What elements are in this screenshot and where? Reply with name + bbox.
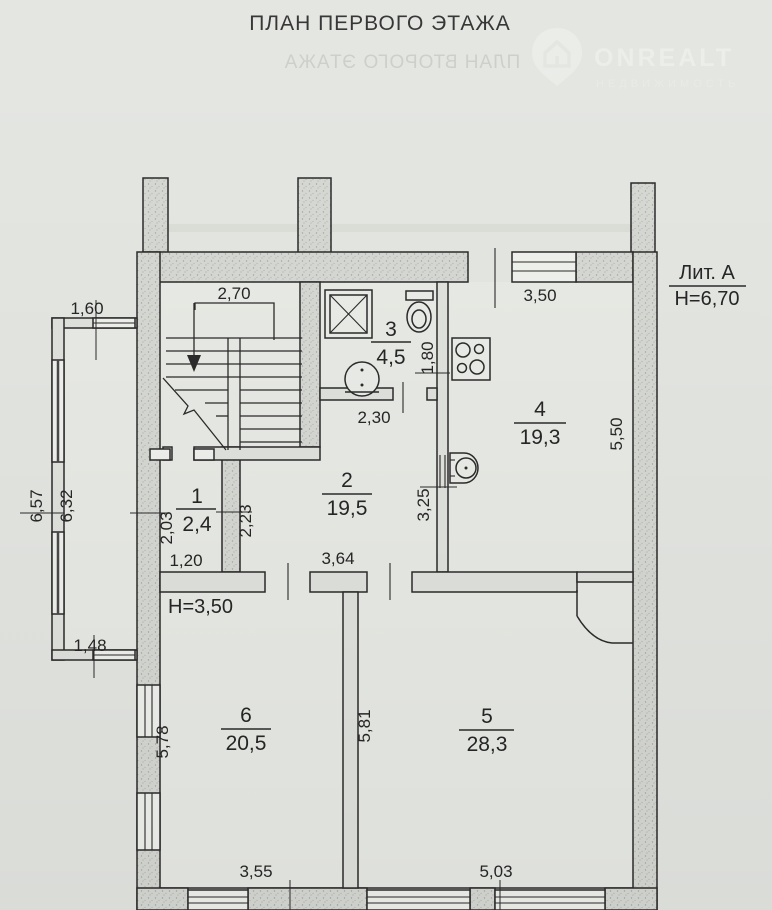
ghost-title: ПЛАН ВТОРОГО ЭТАЖА: [284, 52, 521, 73]
dim-stair-width: 2,70: [217, 284, 250, 303]
dim-room1-depth: 2,03: [157, 511, 176, 544]
sink-icon: [345, 362, 379, 396]
room1-number: 1: [191, 485, 203, 508]
room4-number: 4: [534, 398, 546, 421]
room5-bottom-window-1: [367, 890, 470, 910]
bleed-through-smudge: [165, 224, 653, 232]
room4-area: 19,3: [520, 426, 561, 449]
onrealt-watermark: ONREALT НЕДВИЖИМОСТЬ: [532, 28, 739, 90]
kitchen-sink-icon: [450, 453, 478, 483]
dim-room6-width: 3,55: [239, 862, 272, 881]
ghost-title-group: ПЛАН ВТОРОГО ЭТАЖА: [284, 52, 521, 73]
kitchen-top-window: [512, 252, 576, 282]
dim-bathroom-depth: 1,80: [418, 341, 437, 374]
stove-icon: [452, 338, 490, 380]
brand-subtitle: НЕДВИЖИМОСТЬ: [596, 78, 739, 90]
page-title: ПЛАН ПЕРВОГО ЭТАЖА: [249, 12, 511, 35]
balcony-left-window-1: [52, 360, 64, 462]
dim-balcony-bottom: 1,48: [73, 636, 106, 655]
dim-room2-right: 3,25: [414, 488, 433, 521]
room6-bottom-window: [188, 890, 248, 910]
dim-room5-depth: 5,81: [355, 709, 374, 742]
room2-number: 2: [341, 469, 353, 492]
dim-room2-left: 2,23: [236, 504, 255, 537]
staircase-right-wall: [300, 282, 320, 447]
room6-area: 20,5: [226, 732, 267, 755]
floor-height: Н=3,50: [168, 596, 233, 618]
room3-number: 3: [385, 318, 397, 341]
dim-balcony-top: 1,60: [70, 299, 103, 318]
brand-name: ONREALT: [594, 44, 734, 72]
top-wall-right: [576, 252, 633, 282]
balcony-left-window-2: [52, 532, 64, 614]
building-height: Н=6,70: [674, 288, 739, 310]
room6-left-window-2: [137, 793, 160, 850]
dim-hall-top: 2,30: [357, 408, 390, 427]
wall-stub-right: [631, 183, 655, 254]
dim-kitchen-top: 3,50: [523, 286, 556, 305]
floor-plan-drawing: ПЛАН ПЕРВОГО ЭТАЖА ПЛАН ВТОРОГО ЭТАЖА ON…: [0, 0, 772, 910]
room5-number: 5: [481, 705, 493, 728]
top-wall-left: [143, 252, 468, 282]
dim-balcony-outer: 6,57: [27, 489, 46, 522]
building-letter: Лит. А: [679, 262, 735, 284]
dim-balcony-inner: 6,32: [57, 489, 76, 522]
scanned-floor-plan-page: ПЛАН ПЕРВОГО ЭТАЖА ПЛАН ВТОРОГО ЭТАЖА ON…: [0, 0, 772, 910]
wall-stub-middle: [298, 178, 331, 254]
room5-bottom-window-2: [495, 890, 605, 910]
dim-room5-width: 5,03: [479, 862, 512, 881]
room1-area: 2,4: [182, 513, 212, 536]
bottom-wall: [137, 888, 657, 910]
dim-room2-width: 3,64: [321, 549, 354, 568]
room5-area: 28,3: [467, 733, 508, 756]
kitchen-left-wall: [437, 282, 448, 572]
room2-area: 19,5: [327, 497, 368, 520]
shower-icon: [325, 290, 372, 338]
right-exterior-wall: [633, 252, 657, 910]
room3-area: 4,5: [376, 346, 405, 369]
toilet-icon: [406, 291, 433, 332]
room6-number: 6: [240, 704, 252, 727]
dim-room1-width: 1,20: [169, 551, 202, 570]
balcony-interior: [64, 328, 137, 650]
wall-stub-left: [143, 178, 168, 254]
dim-room6-depth: 5,78: [153, 725, 172, 758]
dim-kitchen-right: 5,50: [607, 417, 626, 450]
